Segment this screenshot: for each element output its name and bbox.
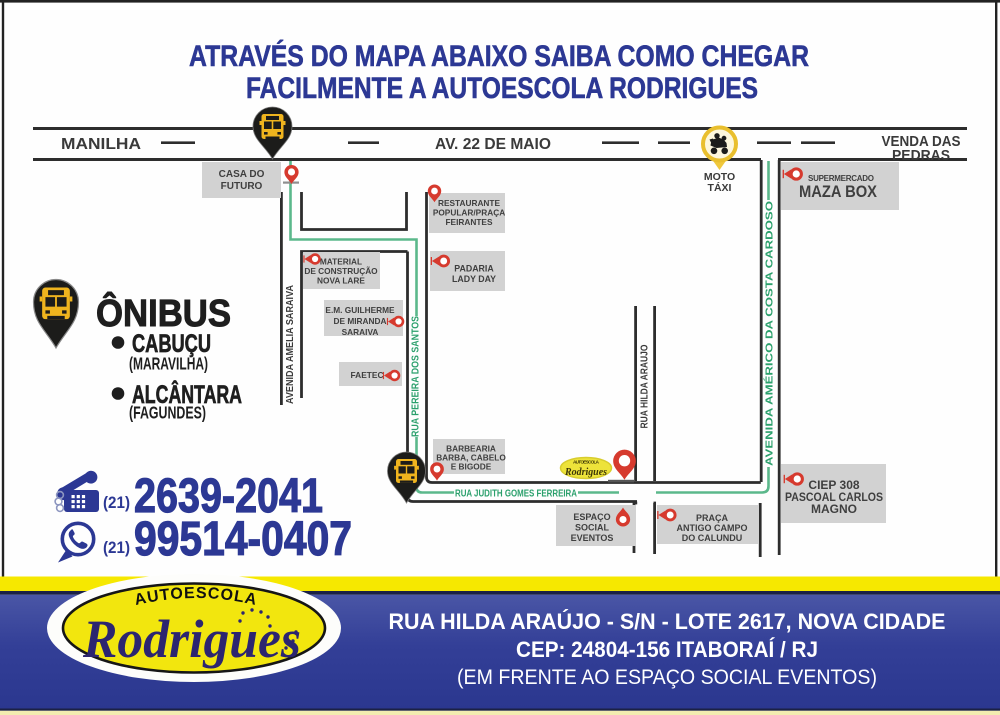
svg-text:CASA DO: CASA DO xyxy=(219,169,265,180)
svg-text:MANILHA: MANILHA xyxy=(61,136,141,153)
svg-text:FUTURO: FUTURO xyxy=(221,181,263,192)
svg-text:MAGNO: MAGNO xyxy=(811,502,857,516)
svg-text:ESPAÇO: ESPAÇO xyxy=(573,512,610,522)
svg-text:ANTIGO CAMPO: ANTIGO CAMPO xyxy=(677,523,748,533)
svg-text:NOVA LARE: NOVA LARE xyxy=(317,276,365,286)
svg-text:AV. 22 DE MAIO: AV. 22 DE MAIO xyxy=(435,136,551,153)
svg-text:MAZA BOX: MAZA BOX xyxy=(799,182,878,201)
svg-text:PADARIA: PADARIA xyxy=(454,264,494,274)
svg-text:TÁXI: TÁXI xyxy=(708,181,732,194)
svg-text:FAETEC: FAETEC xyxy=(351,370,384,380)
svg-text:(MARAVILHA): (MARAVILHA) xyxy=(129,354,208,374)
svg-text:RUA HILDA ARAUJO: RUA HILDA ARAUJO xyxy=(640,344,651,428)
svg-text:99514-0407: 99514-0407 xyxy=(134,513,352,566)
svg-text:PEDRAS: PEDRAS xyxy=(892,148,950,164)
svg-text:(21): (21) xyxy=(103,539,130,557)
svg-text:(EM FRENTE AO ESPAÇO SOCIAL EV: (EM FRENTE AO ESPAÇO SOCIAL EVENTOS) xyxy=(457,665,877,689)
svg-text:(FAGUNDES): (FAGUNDES) xyxy=(129,403,206,423)
svg-text:SOCIAL: SOCIAL xyxy=(575,523,610,533)
svg-text:EVENTOS: EVENTOS xyxy=(571,533,614,543)
svg-text:POPULAR/PRAÇA: POPULAR/PRAÇA xyxy=(433,208,505,218)
svg-text:LADY DAY: LADY DAY xyxy=(452,274,496,284)
svg-text:PRAÇA: PRAÇA xyxy=(696,513,729,523)
svg-text:E.M. GUILHERME: E.M. GUILHERME xyxy=(325,305,395,315)
svg-text:MATERIAL: MATERIAL xyxy=(320,257,362,267)
svg-text:E BIGODE: E BIGODE xyxy=(451,462,492,472)
svg-text:ATRAVÉS DO MAPA ABAIXO SAIBA C: ATRAVÉS DO MAPA ABAIXO SAIBA COMO CHEGAR xyxy=(189,39,809,73)
svg-text:AVENIDA AMELIA SARAIVA: AVENIDA AMELIA SARAIVA xyxy=(285,285,296,404)
svg-text:DO CALUNDU: DO CALUNDU xyxy=(682,533,743,543)
svg-text:CEP: 24804-156 ITABORAÍ / RJ: CEP: 24804-156 ITABORAÍ / RJ xyxy=(516,637,818,662)
svg-text:RESTAURANTE: RESTAURANTE xyxy=(438,198,501,208)
svg-text:SARAIVA: SARAIVA xyxy=(342,327,379,337)
svg-text:Rodrigues: Rodrigues xyxy=(564,466,607,478)
svg-text:RUA JUDITH GOMES FERREIRA: RUA JUDITH GOMES FERREIRA xyxy=(455,489,577,500)
svg-text:AVENIDA AMÉRICO DA COSTA CARDO: AVENIDA AMÉRICO DA COSTA CARDOSO xyxy=(763,201,776,466)
svg-text:ÔNIBUS: ÔNIBUS xyxy=(96,290,231,335)
svg-text:AUTOESCOLA: AUTOESCOLA xyxy=(573,460,600,465)
svg-text:(21): (21) xyxy=(103,494,130,512)
svg-text:RUA PEREIRA DOS SANTOS: RUA PEREIRA DOS SANTOS xyxy=(411,316,422,437)
svg-text:FEIRANTES: FEIRANTES xyxy=(445,217,492,227)
svg-text:RUA HILDA ARAÚJO - S/N - LOTE: RUA HILDA ARAÚJO - S/N - LOTE 2617, NOVA… xyxy=(389,609,946,634)
svg-text:DE CONSTRUÇÃO: DE CONSTRUÇÃO xyxy=(304,266,378,276)
svg-text:DE MIRANDA: DE MIRANDA xyxy=(333,316,386,326)
svg-text:FACILMENTE A AUTOESCOLA RODRIG: FACILMENTE A AUTOESCOLA RODRIGUES xyxy=(246,72,758,105)
